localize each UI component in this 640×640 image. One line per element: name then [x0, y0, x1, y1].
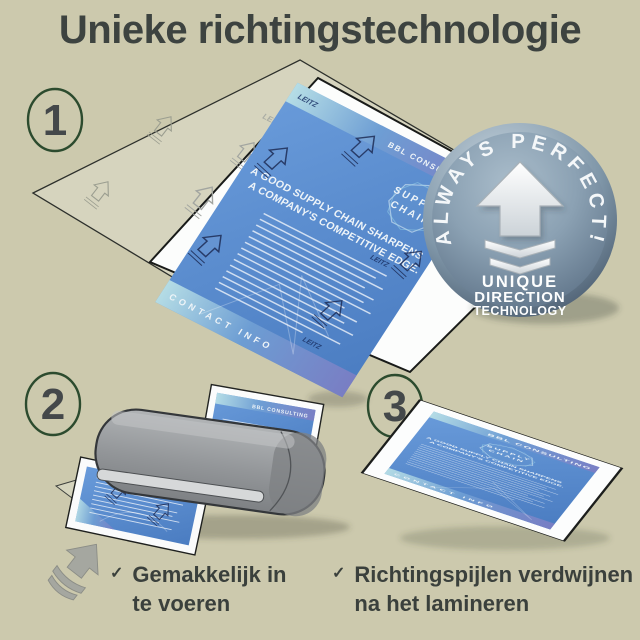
checklist-item-2: ✓ Richtingspijlen verdwijnen na het lami…: [332, 561, 633, 618]
step-1-number: 1: [43, 96, 67, 145]
checklist-2-line-1: Richtingspijlen verdwijnen: [354, 561, 633, 590]
feed-arrow-icon: [43, 532, 112, 605]
infographic: Unieke richtingstechnologie: [0, 0, 640, 640]
illustration-canvas: 1 LEITZ BBL CONSULTING: [0, 0, 640, 640]
check-icon: ✓: [332, 561, 345, 618]
badge-line-3: TECHNOLOGY: [473, 304, 566, 318]
step-2-number: 2: [41, 380, 65, 429]
checklist-1-text: Gemakkelijk in te voeren: [132, 561, 286, 618]
step-3: 3 BBL CONSULTING SUPPLY CHAIN A GOOD SUP…: [362, 375, 622, 550]
checklist-2-text: Richtingspijlen verdwijnen na het lamine…: [354, 561, 633, 618]
check-icon: ✓: [110, 561, 123, 618]
checklist-item-1: ✓ Gemakkelijk in te voeren: [110, 561, 287, 618]
checklist-1-line-1: Gemakkelijk in: [132, 561, 286, 590]
checklist-2-line-2: na het lamineren: [354, 590, 633, 619]
laminated-document-shadow: [400, 526, 610, 550]
checklist-1-line-2: te voeren: [132, 590, 286, 619]
